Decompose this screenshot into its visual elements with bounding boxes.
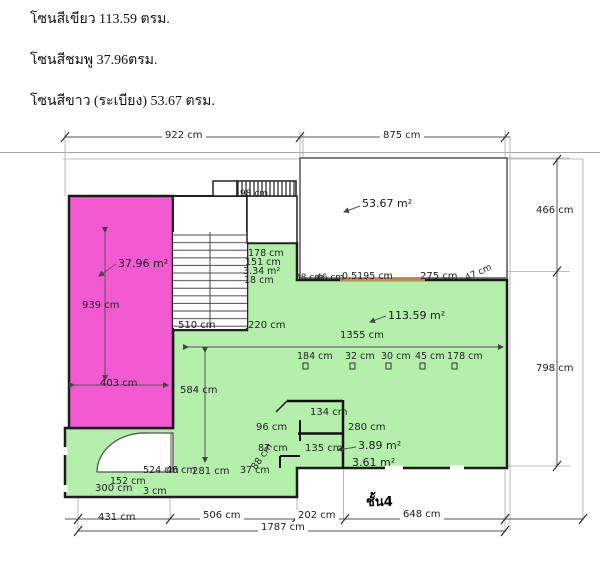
floorplan-page: โซนสีเขียว 113.59 ตรม. โซนสีชมพู 37.96ตร… bbox=[0, 0, 600, 568]
dim-184: 184 cm bbox=[297, 352, 333, 362]
dim-178-b: 178 cm bbox=[447, 352, 483, 362]
dim-45: 45 cm bbox=[415, 352, 445, 362]
dim-3: 3 cm bbox=[143, 487, 167, 497]
dim-135: 135 cm bbox=[305, 443, 343, 454]
dim-275: 275 cm bbox=[420, 271, 458, 282]
area-room-a: 3.89 m² bbox=[358, 440, 401, 452]
dim-280: 280 cm bbox=[348, 422, 386, 433]
dim-202: 202 cm bbox=[295, 510, 339, 521]
area-white-balcony: 53.67 m² bbox=[362, 198, 412, 210]
area-green: 113.59 m² bbox=[388, 310, 445, 322]
dim-32: 32 cm bbox=[345, 352, 375, 362]
dim-510: 510 cm bbox=[178, 320, 216, 331]
dim-403: 403 cm bbox=[100, 378, 138, 389]
dim-18: 18 cm bbox=[244, 276, 274, 286]
dim-1787: 1787 cm bbox=[258, 522, 308, 533]
dim-30: 30 cm bbox=[381, 352, 411, 362]
dim-220: 220 cm bbox=[248, 320, 286, 331]
dim-506: 506 cm bbox=[200, 510, 244, 521]
dim-96: 96 cm bbox=[256, 422, 287, 433]
area-room-b: 3.61 m² bbox=[352, 457, 395, 469]
dim-922: 922 cm bbox=[162, 130, 206, 141]
dim-466: 466 cm bbox=[536, 205, 574, 216]
dim-798: 798 cm bbox=[536, 363, 574, 374]
dim-584: 584 cm bbox=[180, 385, 218, 396]
dim-46-a: 46 cm bbox=[316, 274, 344, 284]
floor-label: ชั้น4 bbox=[366, 496, 393, 510]
dim-134: 134 cm bbox=[310, 407, 348, 418]
dim-648: 648 cm bbox=[400, 509, 444, 520]
pink-zone-shape bbox=[69, 196, 173, 428]
balcony-zone-shape bbox=[300, 158, 507, 278]
dim-152: 152 cm bbox=[110, 477, 146, 487]
floorplan-drawing bbox=[0, 0, 600, 568]
dim-939: 939 cm bbox=[82, 300, 120, 311]
dim-37: 37 cm bbox=[240, 466, 270, 476]
dim-281: 281 cm bbox=[192, 466, 230, 477]
dim-05195: 0.5195 cm bbox=[342, 272, 393, 282]
dim-98: 98 cm bbox=[240, 190, 268, 200]
area-pink: 37.96 m² bbox=[118, 258, 168, 270]
dim-431: 431 cm bbox=[98, 512, 136, 523]
dim-1355: 1355 cm bbox=[340, 330, 384, 341]
dim-875: 875 cm bbox=[380, 130, 424, 141]
